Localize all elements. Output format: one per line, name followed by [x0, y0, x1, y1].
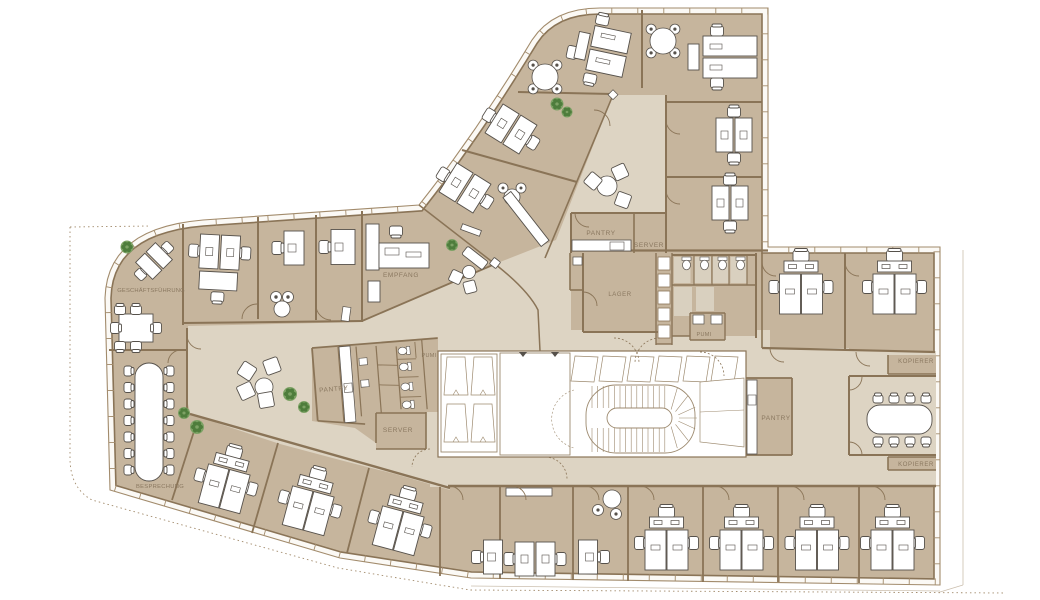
svg-text:PUMI: PUMI [697, 332, 712, 338]
svg-text:SERVER: SERVER [634, 242, 664, 249]
svg-text:PANTRY: PANTRY [761, 415, 790, 422]
svg-text:BESPRECHUNG: BESPRECHUNG [136, 484, 184, 490]
svg-text:PANTRY: PANTRY [586, 230, 615, 237]
svg-text:KOPIERER: KOPIERER [898, 359, 934, 365]
svg-text:GESCHÄFTSFÜHRUNG: GESCHÄFTSFÜHRUNG [117, 287, 185, 294]
svg-text:LAGER: LAGER [608, 292, 631, 298]
svg-text:SERVER: SERVER [383, 427, 413, 434]
svg-text:PUMI: PUMI [422, 353, 437, 359]
svg-text:KOPIERER: KOPIERER [898, 462, 934, 468]
svg-text:EMPFANG: EMPFANG [383, 272, 419, 279]
